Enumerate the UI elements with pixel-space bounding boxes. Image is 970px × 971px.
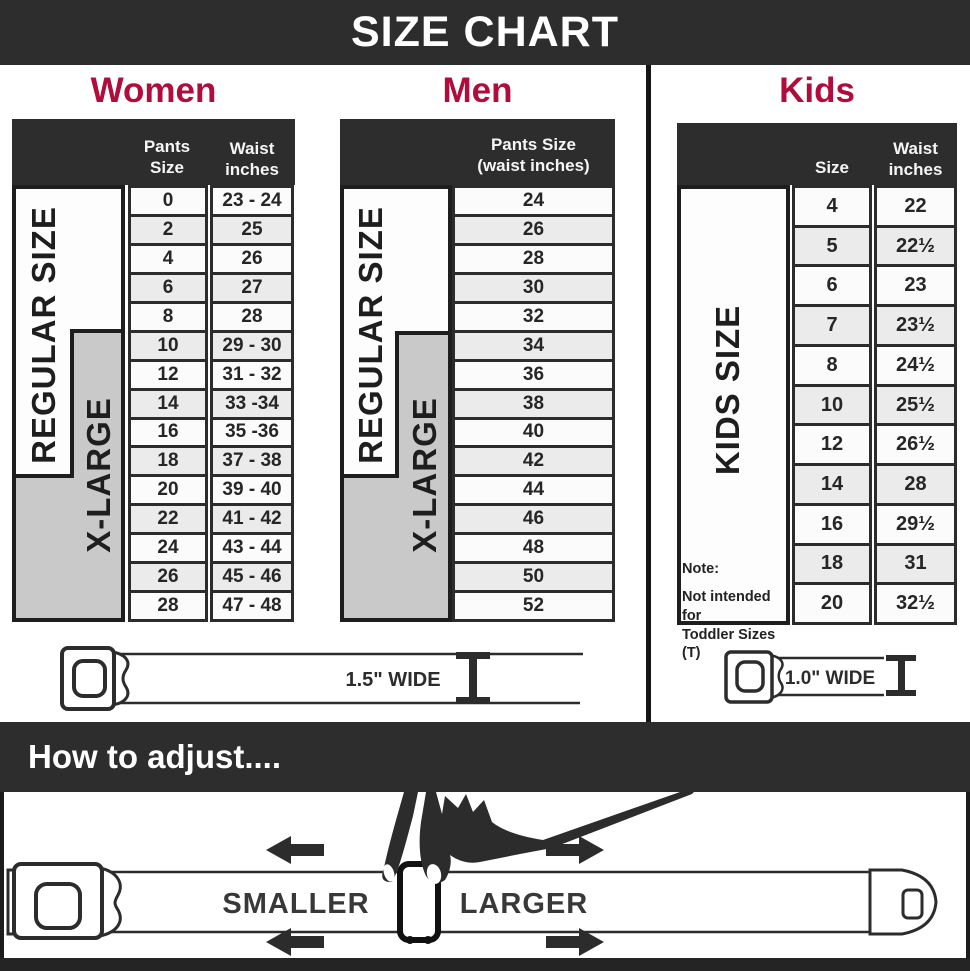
- men-table-header: Pants Size (waist inches): [340, 119, 615, 185]
- table-cell: 37 - 38: [210, 445, 294, 477]
- women-size-bands: REGULAR SIZE X-LARGE: [12, 185, 125, 622]
- table-cell: 20: [128, 474, 208, 506]
- table-cell: 34: [452, 330, 615, 362]
- women-pants-column: 0246810121416182022242628: [128, 185, 208, 622]
- table-cell: 23: [874, 264, 957, 307]
- men-pants-size-header: Pants Size (waist inches): [452, 134, 615, 177]
- table-cell: 12: [128, 359, 208, 391]
- table-cell: 31 - 32: [210, 359, 294, 391]
- table-cell: 5: [792, 225, 872, 268]
- table-cell: 26: [452, 214, 615, 246]
- table-cell: 35 -36: [210, 417, 294, 449]
- table-cell: 8: [792, 344, 872, 387]
- women-waist-header: Waist inches: [210, 138, 294, 181]
- kids-size-band: KIDS SIZE: [677, 185, 790, 625]
- page-title: SIZE CHART: [351, 8, 619, 57]
- table-cell: 45 - 46: [210, 561, 294, 593]
- kids-waist-header: Waist inches: [874, 138, 957, 181]
- table-cell: 2: [128, 214, 208, 246]
- table-cell: 29½: [874, 503, 957, 546]
- adult-buckle-icon: [62, 648, 128, 709]
- table-cell: 41 - 42: [210, 503, 294, 535]
- table-cell: 4: [792, 185, 872, 228]
- table-cell: 7: [792, 304, 872, 347]
- table-cell: 16: [128, 417, 208, 449]
- table-cell: 24: [452, 185, 615, 217]
- table-cell: 36: [452, 359, 615, 391]
- table-cell: 4: [128, 243, 208, 275]
- table-cell: 46: [452, 503, 615, 535]
- kids-waist-column: 2222½2323½24½25½26½2829½3132½: [874, 185, 957, 625]
- table-cell: 23 - 24: [210, 185, 294, 217]
- section-divider: [646, 65, 651, 722]
- women-regular-label: REGULAR SIZE: [25, 206, 62, 464]
- table-cell: 47 - 48: [210, 590, 294, 622]
- table-cell: 28: [874, 463, 957, 506]
- larger-label: LARGER: [460, 888, 588, 920]
- table-cell: 32½: [874, 582, 957, 625]
- women-heading: Women: [12, 68, 295, 114]
- table-cell: 27: [210, 272, 294, 304]
- table-cell: 38: [452, 388, 615, 420]
- table-cell: 22½: [874, 225, 957, 268]
- adult-belt-graphic: 1.5" WIDE: [8, 640, 648, 720]
- table-cell: 42: [452, 445, 615, 477]
- men-regular-label: REGULAR SIZE: [352, 206, 389, 464]
- kids-belt-width-label: 1.0" WIDE: [785, 668, 875, 689]
- table-cell: 6: [128, 272, 208, 304]
- smaller-label: SMALLER: [222, 888, 369, 920]
- men-size-column: 242628303234363840424446485052: [452, 185, 615, 622]
- bottom-bar: [0, 958, 970, 971]
- adjust-band: How to adjust....: [0, 722, 970, 792]
- table-cell: 29 - 30: [210, 330, 294, 362]
- kids-table-header: Size Waist inches: [677, 123, 957, 185]
- table-cell: 28: [128, 590, 208, 622]
- table-cell: 18: [792, 543, 872, 586]
- men-xlarge-label: X-LARGE: [406, 397, 443, 553]
- men-heading: Men: [340, 68, 615, 114]
- table-cell: 25½: [874, 384, 957, 427]
- kids-heading: Kids: [677, 68, 957, 114]
- table-cell: 6: [792, 264, 872, 307]
- table-cell: 43 - 44: [210, 532, 294, 564]
- table-cell: 50: [452, 561, 615, 593]
- table-cell: 14: [128, 388, 208, 420]
- kids-buckle-icon: [726, 652, 783, 702]
- kids-size-header: Size: [792, 157, 872, 178]
- table-cell: 28: [210, 301, 294, 333]
- table-cell: 31: [874, 543, 957, 586]
- kids-width-marker-icon: [886, 655, 916, 696]
- adjust-heading: How to adjust....: [0, 738, 281, 776]
- table-cell: 22: [874, 185, 957, 228]
- table-cell: 48: [452, 532, 615, 564]
- women-table-header: Pants Size Waist inches: [12, 119, 295, 185]
- adjust-belt-tip: [870, 870, 936, 934]
- women-waist-column: 23 - 242526272829 - 3031 - 3233 -3435 -3…: [210, 185, 294, 622]
- kids-size-label: KIDS SIZE: [709, 305, 746, 475]
- kids-belt-graphic: 1.0" WIDE: [678, 645, 962, 715]
- table-cell: 26: [128, 561, 208, 593]
- table-cell: 10: [128, 330, 208, 362]
- men-size-bands: REGULAR SIZE X-LARGE: [340, 185, 452, 622]
- table-cell: 26½: [874, 423, 957, 466]
- table-cell: 0: [128, 185, 208, 217]
- women-xlarge-label: X-LARGE: [80, 397, 117, 553]
- table-cell: 30: [452, 272, 615, 304]
- table-cell: 32: [452, 301, 615, 333]
- table-cell: 44: [452, 474, 615, 506]
- top-banner: SIZE CHART: [0, 0, 970, 65]
- adjust-illustration: SMALLER LARGER: [0, 792, 970, 958]
- table-cell: 24½: [874, 344, 957, 387]
- table-cell: 28: [452, 243, 615, 275]
- table-cell: 14: [792, 463, 872, 506]
- arrow-left-top-icon: [266, 836, 324, 864]
- table-cell: 10: [792, 384, 872, 427]
- table-cell: 52: [452, 590, 615, 622]
- table-cell: 24: [128, 532, 208, 564]
- adjust-buckle-icon: [8, 864, 120, 938]
- table-cell: 40: [452, 417, 615, 449]
- table-cell: 16: [792, 503, 872, 546]
- women-pants-size-header: Pants Size: [126, 136, 208, 179]
- size-chart-page: SIZE CHART Women Men Kids Pants Size Wai…: [0, 0, 970, 971]
- table-cell: 33 -34: [210, 388, 294, 420]
- table-cell: 20: [792, 582, 872, 625]
- table-cell: 8: [128, 301, 208, 333]
- table-cell: 23½: [874, 304, 957, 347]
- table-cell: 22: [128, 503, 208, 535]
- table-cell: 26: [210, 243, 294, 275]
- table-cell: 18: [128, 445, 208, 477]
- table-cell: 39 - 40: [210, 474, 294, 506]
- table-cell: 12: [792, 423, 872, 466]
- table-cell: 25: [210, 214, 294, 246]
- kids-size-column: 45678101214161820: [792, 185, 872, 625]
- adult-belt-width-label: 1.5" WIDE: [345, 669, 440, 691]
